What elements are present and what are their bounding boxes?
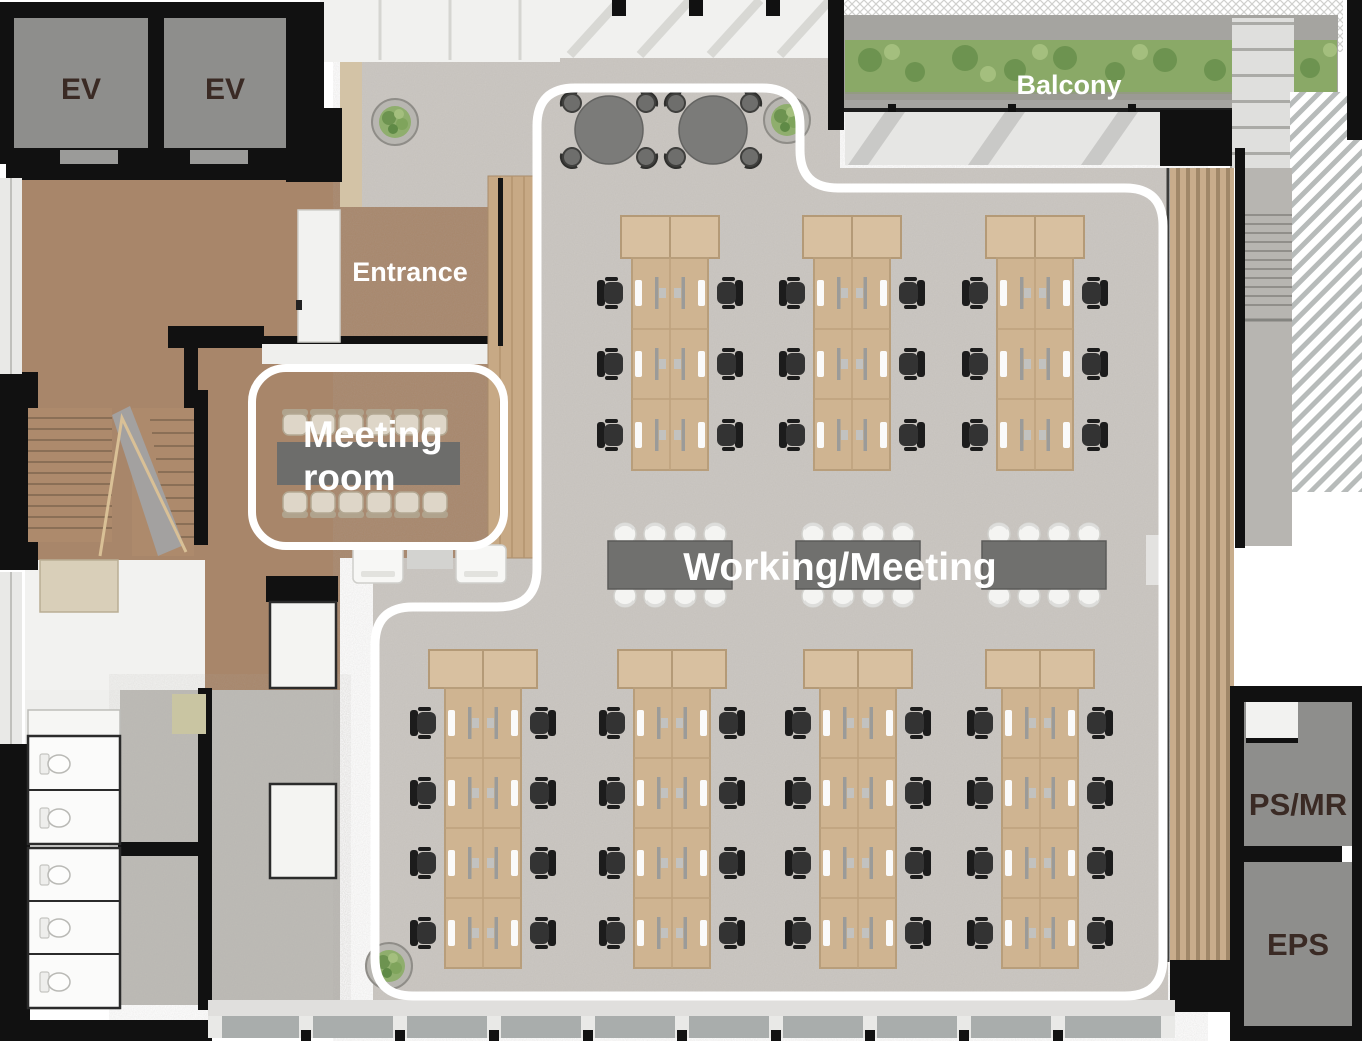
elevator-hall-wood-floor [12, 160, 340, 350]
sliding-door-track [498, 178, 503, 346]
entrance-door [298, 210, 340, 342]
entrance-label: Entrance [352, 257, 468, 287]
plant-pot [372, 99, 418, 145]
ev2-label: EV [205, 73, 245, 106]
toilets [28, 710, 120, 1008]
louvered-roof [1290, 92, 1362, 492]
wood-partition [488, 176, 538, 558]
vanity-counter [28, 710, 120, 736]
balcony-label: Balcony [1016, 70, 1121, 100]
window-sill [208, 1000, 1175, 1016]
exterior-wall-band [1232, 18, 1294, 168]
floor-plan-page: EV EV Balcony Entrance Meeting room Work… [0, 0, 1362, 1041]
printer-1 [353, 545, 403, 583]
window-glass [208, 1016, 1175, 1038]
elevator-door [190, 150, 248, 164]
floor-plan: EV EV Balcony Entrance Meeting room Work… [0, 0, 1362, 1041]
column [766, 0, 780, 16]
column [612, 0, 626, 16]
door-handle [296, 300, 302, 310]
meeting-room-label-line1: Meeting [303, 414, 443, 455]
working-meeting-label: Working/Meeting [683, 546, 996, 589]
wood-louver-wall [1170, 168, 1234, 962]
ps-mr-label: PS/MR [1249, 787, 1347, 822]
column [689, 0, 703, 16]
eps-label: EPS [1267, 927, 1329, 962]
elevator-door [60, 150, 118, 164]
top-wall-band [320, 0, 843, 62]
printer-2 [456, 545, 506, 583]
low-cabinet [407, 547, 453, 569]
meeting-room-label-line2: room [303, 457, 396, 498]
ev1-label: EV [61, 73, 101, 106]
